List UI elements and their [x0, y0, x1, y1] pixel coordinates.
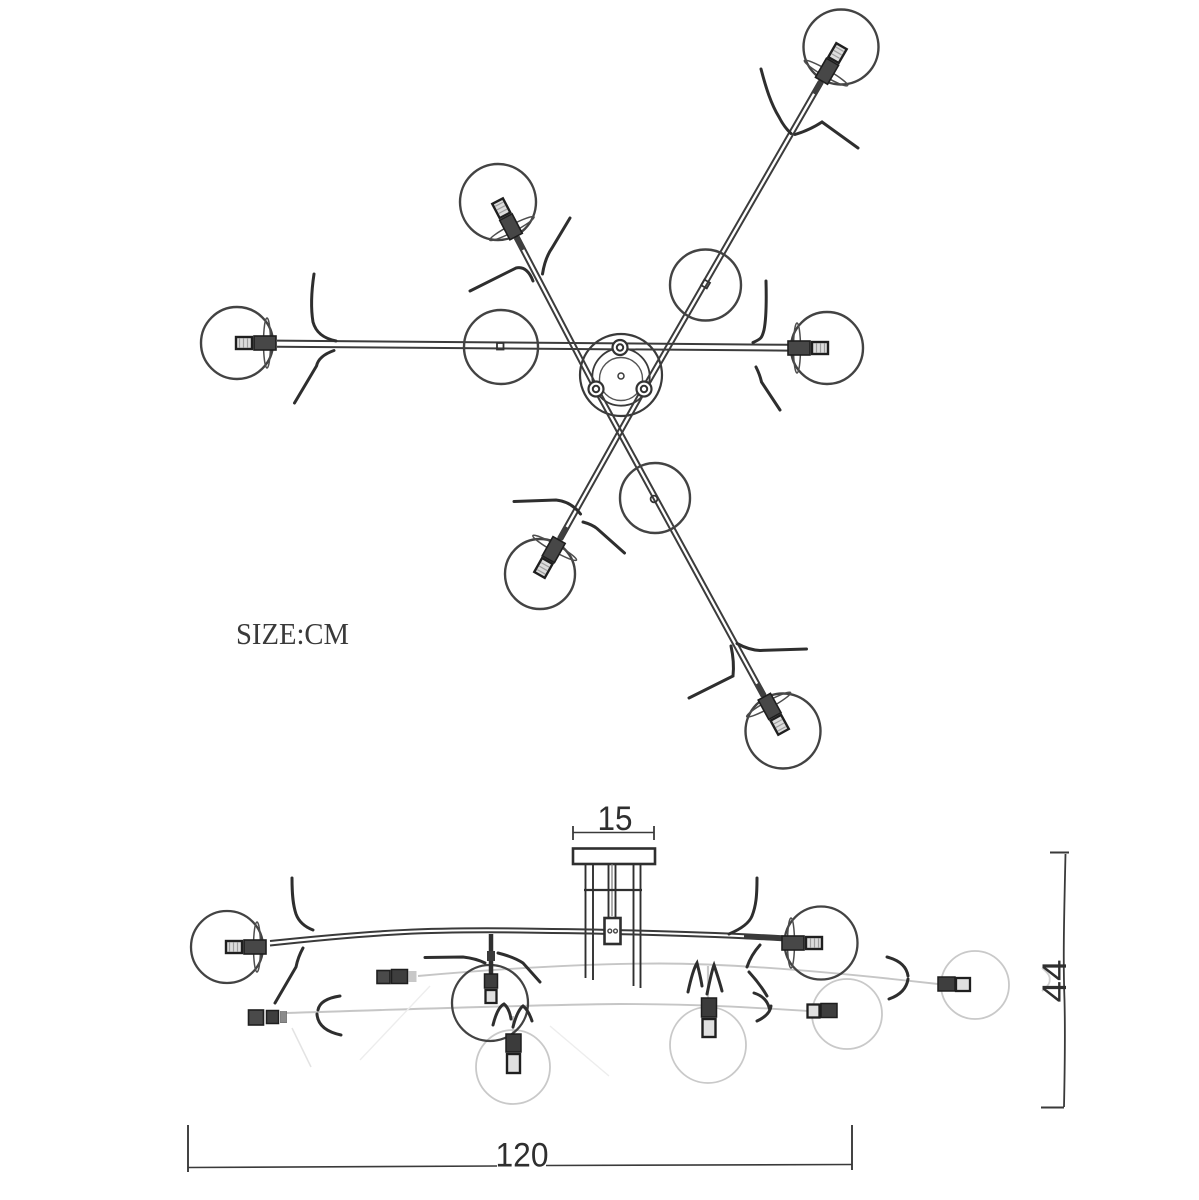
svg-text:44: 44	[1036, 960, 1074, 1003]
svg-text:15: 15	[598, 800, 633, 838]
svg-text:SIZE:CM: SIZE:CM	[236, 616, 349, 651]
svg-text:120: 120	[496, 1137, 549, 1175]
